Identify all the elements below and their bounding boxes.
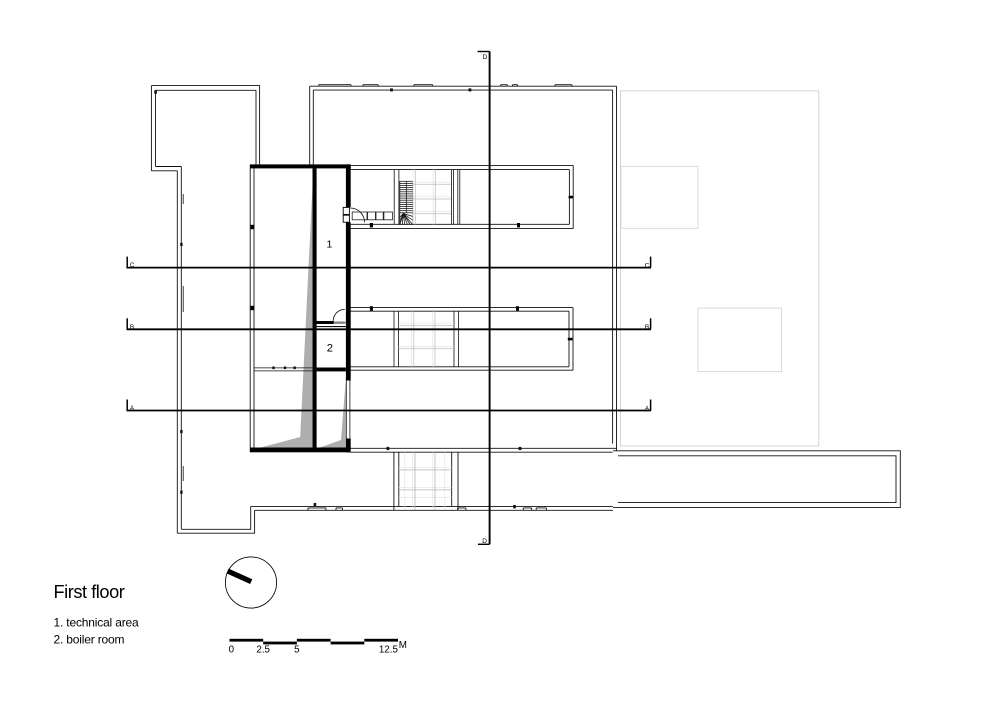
svg-text:C: C (130, 262, 135, 269)
svg-text:D: D (482, 538, 487, 545)
svg-text:0: 0 (229, 644, 235, 655)
svg-text:A: A (130, 405, 135, 412)
svg-text:2: 2 (327, 342, 333, 354)
svg-text:First floor: First floor (54, 582, 125, 602)
svg-text:2. boiler room: 2. boiler room (54, 632, 125, 646)
svg-text:C: C (645, 262, 650, 269)
svg-text:D: D (483, 54, 488, 61)
svg-text:1: 1 (327, 239, 333, 251)
svg-text:2.5: 2.5 (256, 644, 270, 655)
svg-text:12.5: 12.5 (379, 644, 399, 655)
svg-text:B: B (130, 324, 134, 331)
svg-text:5: 5 (294, 644, 300, 655)
svg-text:A: A (645, 405, 650, 412)
svg-text:1. technical area: 1. technical area (54, 616, 140, 630)
svg-text:M: M (399, 640, 407, 651)
svg-text:B: B (645, 324, 649, 331)
